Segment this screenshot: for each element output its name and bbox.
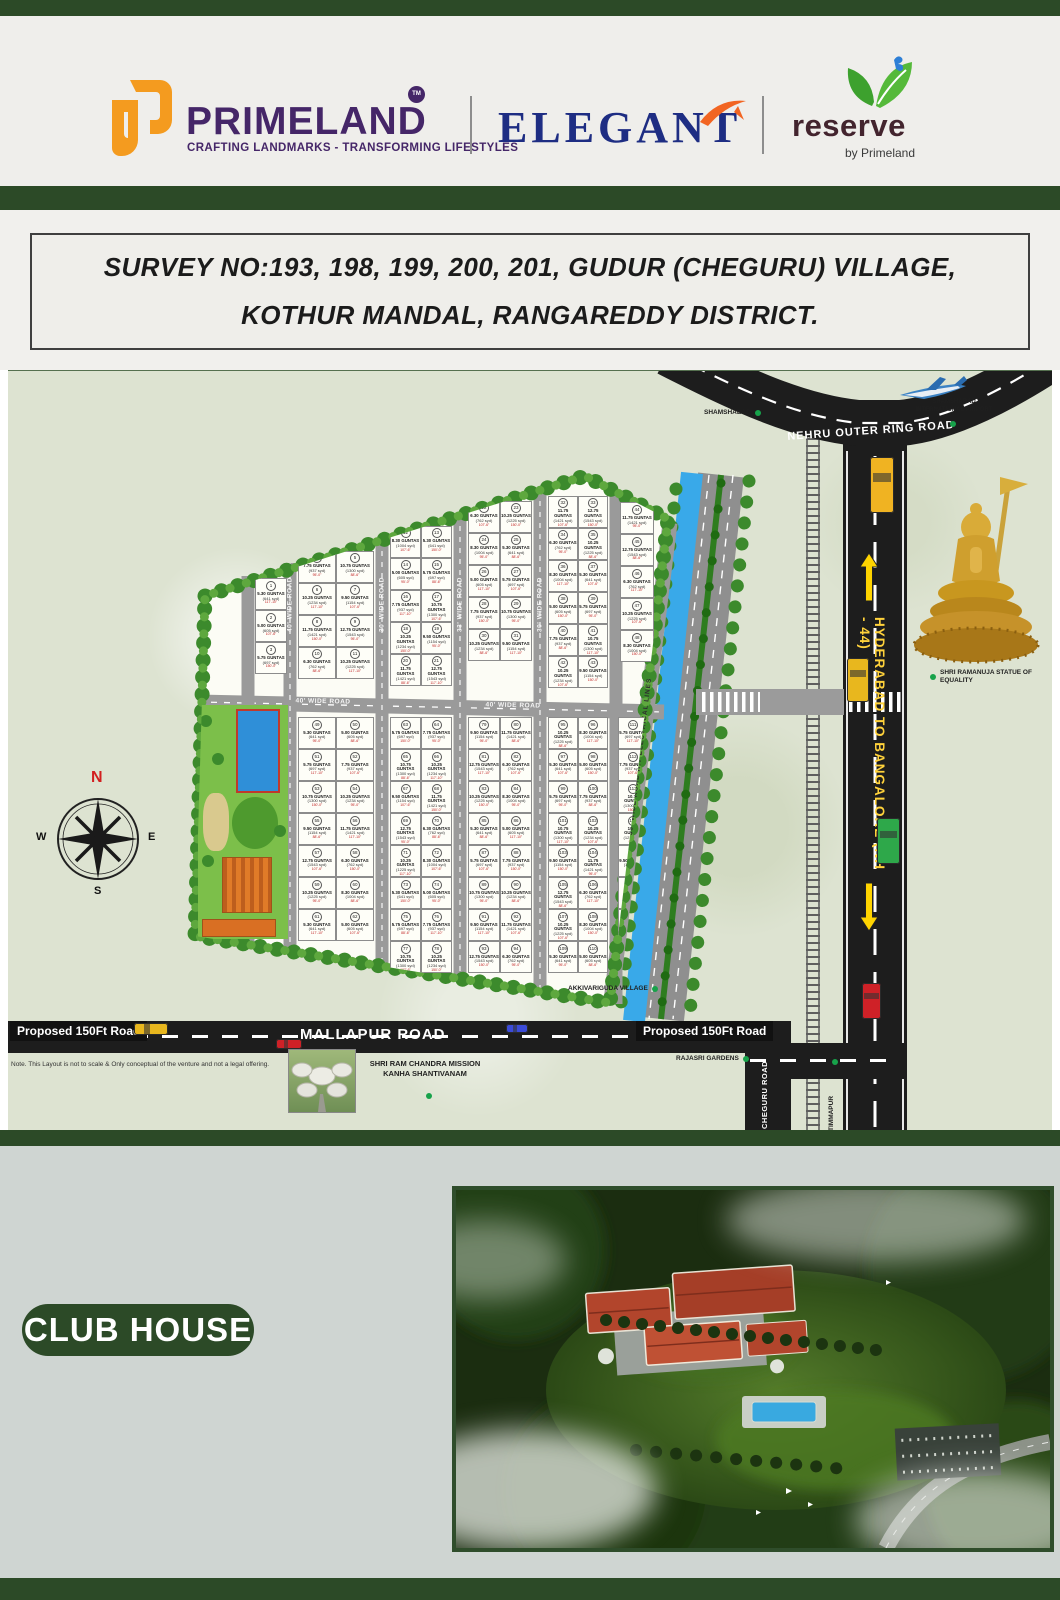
plot-cell: 4710.25 GUNTAS(1225 syd)107'-6" — [620, 598, 654, 630]
plot-cell: 6811.75 GUNTAS(1421 syd)150'-0" — [421, 781, 452, 813]
plot-cell: 1810.25 GUNTAS(1234 syd)150'-0" — [390, 622, 421, 654]
amenity-building-marker — [202, 919, 276, 937]
plot-cell: 439.50 GUNTAS(1154 syd)150'-0" — [578, 656, 608, 688]
plot-cell: 2011.75 GUNTAS(1421 syd)88'-6" — [390, 654, 421, 686]
plot-cell: 1110.25 GUNTAS(1225 syd)117'-10" — [336, 647, 374, 679]
plot-cell: 2910.75 GUNTAS(1300 syd)95'-0" — [500, 597, 532, 629]
plot-cell: 9510.25 GUNTAS(1225 syd)88'-6" — [548, 717, 578, 749]
plot-cell: 8011.75 GUNTAS(1421 syd)88'-6" — [500, 717, 532, 749]
plot-cell: 466.30 GUNTAS(762 syd)117'-10" — [620, 566, 654, 598]
plot-cell: 495.30 GUNTAS(641 syd)95'-0" — [298, 717, 336, 749]
survey-section: SURVEY NO:193, 198, 199, 200, 201, GUDUR… — [0, 210, 1060, 370]
plot-cell: 5910.25 GUNTAS(1225 syd)95'-0" — [298, 877, 336, 909]
plot-cell: 368.30 GUNTAS(1004 syd)117'-10" — [548, 560, 578, 592]
plot-cell: 135.30 GUNTAS(641 syd)150'-0" — [421, 526, 452, 558]
plot-cell: 975.30 GUNTAS(641 syd)107'-6" — [548, 749, 578, 781]
plot-cell: 395.75 GUNTAS(697 syd)95'-0" — [578, 592, 608, 624]
arrow-down-icon — [860, 883, 878, 931]
reserve-byline: by Primeland — [845, 146, 915, 160]
tree-icon — [274, 825, 286, 837]
compass-south: S — [94, 885, 101, 897]
ramanuja-statue — [914, 477, 1038, 662]
yellow-car-icon — [847, 658, 869, 702]
plot-cell: 745.00 GUNTAS(605 syd)95'-0" — [421, 877, 452, 909]
plot-cell: 248.30 GUNTAS(1004 syd)95'-0" — [468, 533, 500, 565]
elegant-swoosh-icon — [700, 98, 750, 130]
plot-cell: 875.75 GUNTAS(697 syd)107'-6" — [468, 845, 500, 877]
plot-cell: 319.50 GUNTAS(1154 syd)117'-10" — [500, 629, 532, 661]
plot-cell: 527.75 GUNTAS(937 syd)107'-6" — [336, 749, 374, 781]
plot-cell: 375.30 GUNTAS(641 syd)107'-6" — [578, 560, 608, 592]
plot-cell: 811.75 GUNTAS(1421 syd)150'-0" — [298, 615, 336, 647]
plot-cell: 488.30 GUNTAS(1004 syd)150'-0" — [620, 630, 654, 662]
green-car-icon — [877, 818, 900, 864]
plot-cell: 985.00 GUNTAS(605 syd)150'-0" — [578, 749, 608, 781]
plot-cell: 275.75 GUNTAS(697 syd)107'-6" — [500, 565, 532, 597]
amenity-area — [198, 705, 288, 939]
clubhouse-badge: CLUB HOUSE — [22, 1304, 254, 1356]
header-divider — [762, 96, 764, 154]
sports-court — [236, 709, 280, 793]
landmark-airport: SHAMSHABAD INTERNATIONAL AIRPORT — [908, 399, 1000, 414]
plot-cell: 7810.25 GUNTAS(1234 syd)150'-0" — [421, 941, 452, 973]
tree-icon — [200, 715, 212, 727]
plot-cell: 848.30 GUNTAS(1004 syd)95'-0" — [500, 781, 532, 813]
tree-icon — [212, 753, 224, 765]
plot-cell: 8310.25 GUNTAS(1225 syd)150'-0" — [468, 781, 500, 813]
plot-cell: 6610.25 GUNTAS(1234 syd)117'-10" — [421, 749, 452, 781]
plot-cell: 855.30 GUNTAS(641 syd)88'-6" — [468, 813, 500, 845]
plot-cell: 10512.75 GUNTAS(1543 syd)88'-6" — [548, 877, 578, 909]
plot-cell: 826.30 GUNTAS(762 syd)107'-6" — [500, 749, 532, 781]
plot-cell: 2112.75 GUNTAS(1543 syd)117'-10" — [421, 654, 452, 686]
plot-cell: 1088.30 GUNTAS(1004 syd)150'-0" — [578, 909, 608, 941]
plot-cell: 728.30 GUNTAS(1004 syd)107'-6" — [421, 845, 452, 877]
plot-cell: 735.30 GUNTAS(641 syd)150'-0" — [390, 877, 421, 909]
primeland-logo-icon — [110, 78, 174, 158]
plot-cell: 610.25 GUNTAS(1234 syd)117'-10" — [298, 583, 336, 615]
lawn-circle — [232, 797, 278, 849]
railway-track — [807, 431, 819, 1131]
landmark-statue: SHRI RAMANUJA STATUE OF EQUALITY — [930, 669, 1034, 685]
mission-domes-icon — [289, 1050, 355, 1112]
plot-cell: 9312.75 GUNTAS(1543 syd)150'-0" — [468, 941, 500, 973]
plot-cell: 199.50 GUNTAS(1154 syd)95'-0" — [421, 622, 452, 654]
plot-cell: 995.75 GUNTAS(697 syd)95'-0" — [548, 781, 578, 813]
plot-cell: 287.75 GUNTAS(937 syd)150'-0" — [468, 597, 500, 629]
plot-cell: 946.30 GUNTAS(762 syd)95'-0" — [500, 941, 532, 973]
green-dot-icon — [930, 674, 936, 680]
plot-cell: 10411.75 GUNTAS(1421 syd)95'-0" — [578, 845, 608, 877]
cheguru-road-label: CHEGURU ROAD — [760, 1045, 769, 1129]
green-dot-icon — [755, 410, 761, 416]
truck-icon — [870, 457, 894, 513]
red-car-icon — [862, 983, 881, 1019]
plot-cell: 865.00 GUNTAS(605 syd)117'-10" — [500, 813, 532, 845]
plot-cell: 625.00 GUNTAS(605 syd)107'-6" — [336, 909, 374, 941]
plot-cell: 9211.75 GUNTAS(1421 syd)107'-6" — [500, 909, 532, 941]
plot-cell: 5611.75 GUNTAS(1421 syd)117'-10" — [336, 813, 374, 845]
green-dot-icon — [652, 986, 658, 992]
clubhouse-render-art — [456, 1190, 1050, 1548]
plot-cell: 407.75 GUNTAS(937 syd)88'-6" — [548, 624, 578, 656]
plot-cell: 1007.75 GUNTAS(937 syd)88'-6" — [578, 781, 608, 813]
primeland-name: PRIMELAND — [186, 100, 427, 144]
plot-cell: 5712.75 GUNTAS(1543 syd)107'-6" — [298, 845, 336, 877]
map-banner-bar — [0, 1130, 1060, 1146]
plot-cell: 5310.75 GUNTAS(1300 syd)150'-0" — [298, 781, 336, 813]
map-disclaimer-note: Note. This Layout is not to scale & Only… — [11, 1061, 291, 1068]
green-dot-icon — [426, 1093, 432, 1099]
blue-car-icon — [506, 1024, 528, 1033]
plot-cell: 346.30 GUNTAS(762 syd)95'-0" — [548, 528, 578, 560]
landmark-timmapur: TIMMAPUR — [828, 1071, 835, 1131]
garden-patch — [203, 793, 229, 851]
plot-cell: 3211.75 GUNTAS(1421 syd)107'-6" — [548, 496, 578, 528]
proposed-road-label-left: Proposed 150Ft Road — [10, 1021, 147, 1041]
connector-road-dashes — [750, 1059, 900, 1062]
plot-cell: 2310.25 GUNTAS(1225 syd)150'-0" — [500, 501, 532, 533]
plot-cell: 255.30 GUNTAS(641 syd)88'-6" — [500, 533, 532, 565]
plot-cell: 106.30 GUNTAS(762 syd)88'-6" — [298, 647, 336, 679]
green-dot-icon — [950, 421, 956, 427]
plot-cell: 385.00 GUNTAS(605 syd)150'-0" — [548, 592, 578, 624]
plot-cell: 4210.25 GUNTAS(1234 syd)107'-6" — [548, 656, 578, 688]
plot-cell: 4512.75 GUNTAS(1543 syd)88'-6" — [620, 534, 654, 566]
header-divider — [470, 96, 472, 154]
plot-cell: 1039.50 GUNTAS(1154 syd)150'-0" — [548, 845, 578, 877]
clubhouse-building-marker — [222, 857, 272, 913]
plot-cell: 706.30 GUNTAS(762 syd)88'-6" — [421, 813, 452, 845]
reserve-name: reserve — [792, 108, 906, 144]
plot-cell: 3510.25 GUNTAS(1225 syd)88'-6" — [578, 528, 608, 560]
plot-cell: 767.75 GUNTAS(937 syd)117'-10" — [421, 909, 452, 941]
plot-cell: 647.75 GUNTAS(937 syd)95'-0" — [421, 717, 452, 749]
plot-cell: 1710.75 GUNTAS(1300 syd)107'-6" — [421, 590, 452, 622]
header: PRIMELAND TM CRAFTING LANDMARKS - TRANSF… — [0, 16, 1060, 186]
plot-cell: 10110.75 GUNTAS(1300 syd)117'-10" — [548, 813, 578, 845]
reserve-leaf-icon — [828, 56, 928, 108]
plot-cell: 559.50 GUNTAS(1154 syd)88'-6" — [298, 813, 336, 845]
plot-cell: 755.75 GUNTAS(697 syd)88'-6" — [390, 909, 421, 941]
plot-cell: 25.00 GUNTAS(605 syd)107'-6" — [255, 610, 287, 642]
compass-north: N — [91, 769, 103, 787]
plot-cell: 79.50 GUNTAS(1154 syd)107'-6" — [336, 583, 374, 615]
plot-cell: 265.00 GUNTAS(605 syd)117'-10" — [468, 565, 500, 597]
mallapur-road-label: MALLAPUR ROAD — [300, 1026, 446, 1043]
plot-cell: 8910.75 GUNTAS(1300 syd)95'-0" — [468, 877, 500, 909]
tree-icon — [202, 855, 214, 867]
plot-cell: 887.75 GUNTAS(937 syd)150'-0" — [500, 845, 532, 877]
plot-cell: 6912.75 GUNTAS(1543 syd)95'-0" — [390, 813, 421, 845]
poster: PRIMELAND TM CRAFTING LANDMARKS - TRANSF… — [0, 0, 1060, 1600]
green-dot-icon — [832, 1059, 838, 1065]
plot-cell: 145.00 GUNTAS(605 syd)95'-0" — [390, 558, 421, 590]
mission-photo — [288, 1049, 356, 1113]
plot-cell: 510.75 GUNTAS(1300 syd)88'-6" — [336, 551, 374, 583]
plot-cell: 679.50 GUNTAS(1154 syd)107'-6" — [390, 781, 421, 813]
plot-cell: 586.30 GUNTAS(762 syd)150'-0" — [336, 845, 374, 877]
clubhouse-section: CLUB HOUSE — [0, 1146, 1060, 1578]
plot-cell: 8112.75 GUNTAS(1543 syd)117'-10" — [468, 749, 500, 781]
plot-cell: 10710.25 GUNTAS(1225 syd)107'-6" — [548, 909, 578, 941]
survey-box: SURVEY NO:193, 198, 199, 200, 201, GUDUR… — [30, 233, 1030, 350]
header-banner-bar — [0, 186, 1060, 210]
bottom-banner-bar — [0, 1578, 1060, 1600]
green-dot-icon — [743, 1056, 749, 1062]
plot-cell: 167.75 GUNTAS(937 syd)117'-10" — [390, 590, 421, 622]
survey-line1: SURVEY NO:193, 198, 199, 200, 201, GUDUR… — [32, 252, 1028, 283]
site-map: NEHRU OUTER RING ROAD HYDERABAD TO BANGA… — [8, 370, 1052, 1132]
primeland-tagline: CRAFTING LANDMARKS - TRANSFORMING LIFEST… — [187, 142, 518, 154]
yellow-car-icon — [134, 1023, 168, 1035]
plot-cell: 515.75 GUNTAS(697 syd)117'-10" — [298, 749, 336, 781]
compass-west: W — [36, 831, 46, 843]
plot-cell: 635.75 GUNTAS(697 syd)150'-0" — [390, 717, 421, 749]
survey-line2: KOTHUR MANDAL, RANGAREDDY DISTRICT. — [32, 300, 1028, 331]
plot-cell: 7710.75 GUNTAS(1300 syd)107'-6" — [390, 941, 421, 973]
plot-cell: 6510.75 GUNTAS(1300 syd)88'-6" — [390, 749, 421, 781]
plot-cell: 919.50 GUNTAS(1154 syd)117'-10" — [468, 909, 500, 941]
plot-cell: 35.75 GUNTAS(697 syd)150'-0" — [255, 642, 287, 674]
primeland-tm-badge: TM — [408, 86, 425, 103]
plot-cell: 615.30 GUNTAS(641 syd)117'-10" — [298, 909, 336, 941]
top-banner-bar — [0, 0, 1060, 16]
compass-rose — [58, 799, 138, 879]
plot-cell: 968.30 GUNTAS(1004 syd)117'-10" — [578, 717, 608, 749]
plot-cell: 7110.25 GUNTAS(1225 syd)117'-10" — [390, 845, 421, 877]
plot-cell: 4110.75 GUNTAS(1300 syd)117'-10" — [578, 624, 608, 656]
plot-cell: 3312.75 GUNTAS(1543 syd)150'-0" — [578, 496, 608, 528]
plot-cell: 10210.25 GUNTAS(1234 syd)107'-6" — [578, 813, 608, 845]
plot-cell: 1105.00 GUNTAS(605 syd)88'-6" — [578, 941, 608, 973]
plot-cell: 1095.30 GUNTAS(641 syd)95'-0" — [548, 941, 578, 973]
compass-east: E — [148, 831, 155, 843]
plot-cell: 505.00 GUNTAS(605 syd)88'-6" — [336, 717, 374, 749]
plot-cell: 15.30 GUNTAS(641 syd)117'-10" — [255, 578, 287, 610]
plot-cell: 3010.25 GUNTAS(1234 syd)88'-6" — [468, 629, 500, 661]
plot-cell: 912.75 GUNTAS(1543 syd)95'-0" — [336, 615, 374, 647]
arrow-up-icon — [860, 553, 878, 601]
landmark-gardens: RAJASRI GARDENS — [676, 1055, 749, 1063]
proposed-road-label-right: Proposed 150Ft Road — [636, 1021, 773, 1041]
plot-cell: 155.75 GUNTAS(697 syd)88'-6" — [421, 558, 452, 590]
red-car-icon — [276, 1039, 302, 1049]
plot-cell: 1066.30 GUNTAS(762 syd)117'-10" — [578, 877, 608, 909]
landmark-shamshabad: SHAMSHABAD — [704, 409, 761, 417]
clubhouse-render — [452, 1186, 1054, 1552]
mission-label: SHRI RAM CHANDRA MISSION KANHA SHANTIVAN… — [362, 1059, 488, 1079]
plot-cell: 608.30 GUNTAS(1004 syd)88'-6" — [336, 877, 374, 909]
landmark-mission: SHRI RAM CHANDRA MISSION KANHA SHANTIVAN… — [288, 1049, 498, 1119]
plot-cell: 9010.25 GUNTAS(1234 syd)88'-6" — [500, 877, 532, 909]
plot-cell: 799.50 GUNTAS(1154 syd)95'-0" — [468, 717, 500, 749]
plot-cell: 5410.25 GUNTAS(1234 syd)95'-0" — [336, 781, 374, 813]
